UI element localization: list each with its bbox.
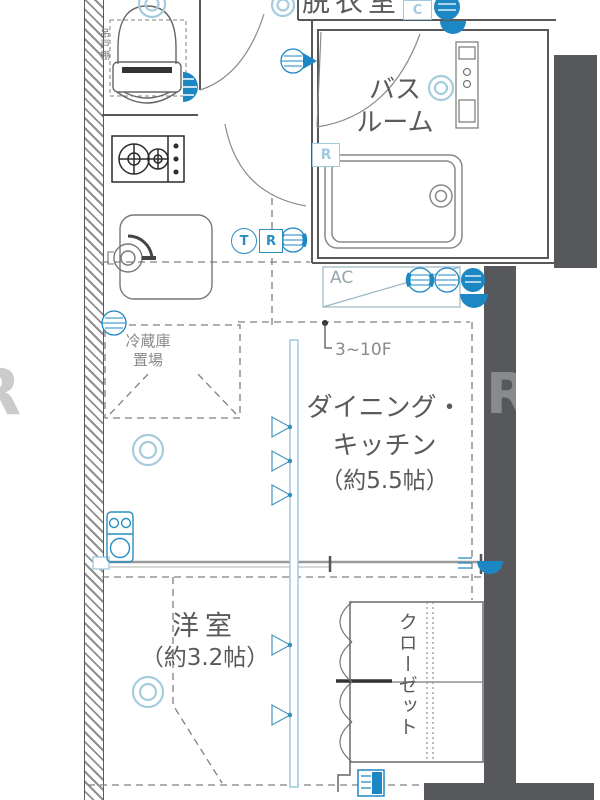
telephone-outlet-symbol: T [231,228,257,254]
closet-label: クローゼット [394,612,418,757]
fridge-label-line1: 冷蔵庫 [112,332,184,351]
floor-range-label: 3~10F [335,340,391,361]
dk-label-line3: （約5.5帖） [292,465,477,498]
outlet-ac-1 [408,268,432,292]
bathroom-label-line2: ルーム [325,107,465,140]
floor-range-leader [322,320,332,348]
western-label-line1: 洋室 [100,610,310,644]
sliding-door-markers [272,417,292,725]
toilet [113,6,181,103]
fridge-space-label: 冷蔵庫 置場 [112,332,184,370]
dressing-room-label: 脱衣室 [302,0,401,19]
kitchen-sink [108,215,212,299]
fridge-label-line2: 置場 [112,351,184,370]
c-outlet-symbol: C [403,0,432,20]
bathtub [325,155,462,248]
equipment-box [107,512,133,562]
dk-label-line1: ダイニング・ [292,390,477,428]
dining-kitchen-label: ダイニング・ キッチン （約5.5帖） [292,390,477,499]
router-outlet-symbol: R [259,229,283,253]
gas-stove [112,136,184,182]
hanging-cabinet-label: 吊戸棚 [96,28,109,61]
bathroom-label: バス ルーム [325,74,465,139]
toilet-washlet-icon [183,72,198,102]
bath-reheat-symbol: R [312,143,340,167]
watermark-letter-right: R [486,362,529,427]
outlet-ac-solid [460,268,488,308]
outlet-bottom [358,770,384,796]
western-label-line2: （約3.2帖） [100,644,310,673]
floor-plan: R [0,0,600,800]
room-partition [93,554,484,574]
outlet-top-right [434,0,466,34]
western-room-label: 洋室 （約3.2帖） [100,610,310,673]
dk-label-line2: キッチン [292,428,477,466]
bathroom-label-line1: バス [325,74,465,107]
outlet-hall [281,228,305,252]
ac-label: AC [330,268,353,289]
outlet-ac-2 [435,268,459,292]
